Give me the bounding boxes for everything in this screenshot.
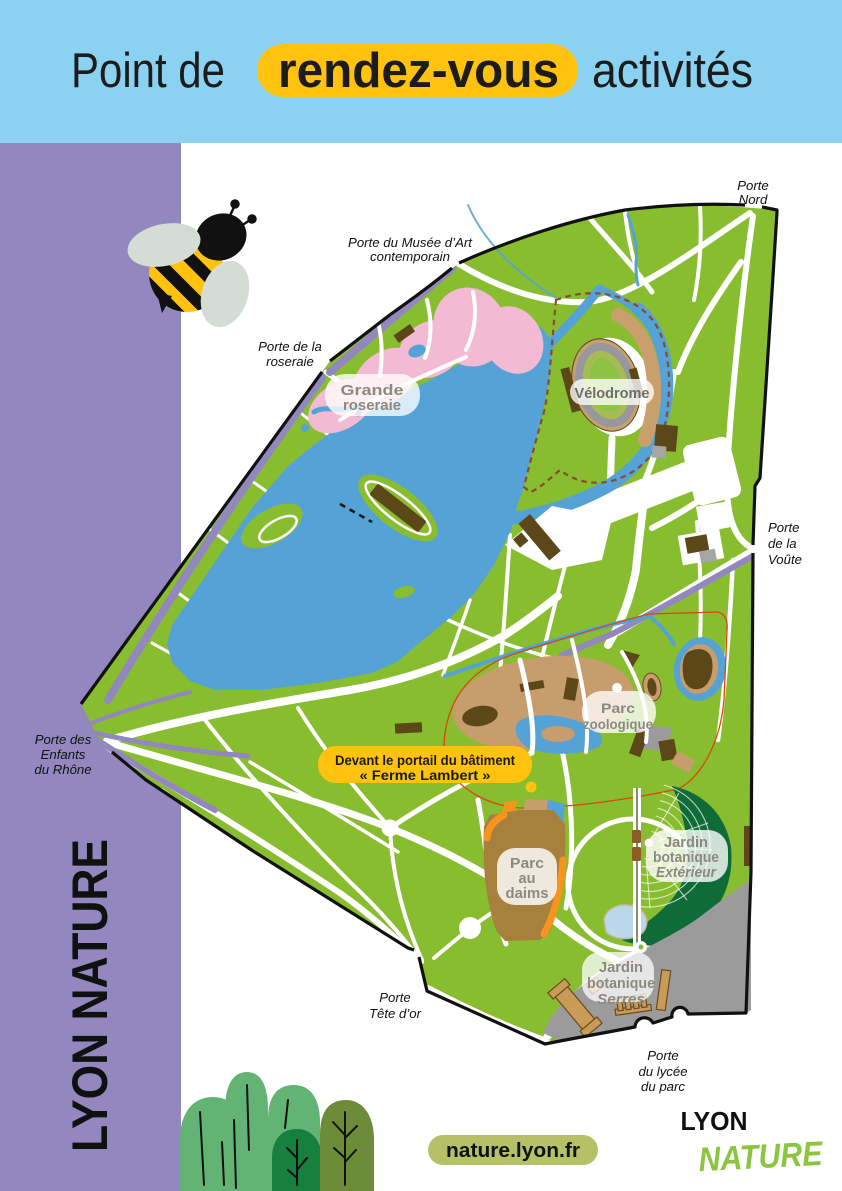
svg-text:Porte: Porte	[379, 990, 411, 1005]
svg-text:Porte: Porte	[647, 1048, 679, 1063]
svg-text:Porte de la: Porte de la	[258, 339, 322, 354]
svg-text:botanique: botanique	[653, 850, 719, 866]
svg-text:Parc: Parc	[510, 856, 544, 872]
svg-text:du lycée: du lycée	[638, 1064, 687, 1079]
svg-text:botanique: botanique	[587, 976, 655, 992]
svg-text:Vélodrome: Vélodrome	[575, 386, 650, 402]
svg-text:Devant le portail du bâtiment: Devant le portail du bâtiment	[335, 753, 515, 768]
svg-text:activités: activités	[592, 44, 753, 98]
svg-text:Jardin: Jardin	[599, 960, 643, 976]
svg-text:roseraie: roseraie	[343, 397, 401, 414]
svg-text:Point de: Point de	[71, 44, 225, 98]
svg-text:Nord: Nord	[739, 192, 768, 207]
svg-text:au: au	[519, 871, 536, 887]
svg-text:rendez-vous: rendez-vous	[278, 44, 559, 98]
svg-text:Serres: Serres	[597, 992, 645, 1008]
svg-text:Jardin: Jardin	[664, 835, 708, 851]
svg-text:Porte: Porte	[737, 178, 769, 193]
svg-text:Enfants: Enfants	[41, 747, 86, 762]
svg-text:Voûte: Voûte	[768, 552, 802, 567]
svg-text:contemporain: contemporain	[370, 249, 450, 264]
svg-text:NATURE: NATURE	[698, 1135, 825, 1179]
svg-text:Porte: Porte	[768, 520, 800, 535]
svg-text:Extérieur: Extérieur	[656, 865, 717, 881]
svg-text:LYON: LYON	[681, 1106, 748, 1136]
svg-text:zoologique: zoologique	[583, 716, 653, 732]
svg-text:du Rhône: du Rhône	[34, 762, 91, 777]
svg-text:de la: de la	[768, 536, 797, 551]
svg-text:Porte des: Porte des	[35, 732, 92, 747]
svg-text:daims: daims	[506, 886, 549, 902]
svg-text:Parc: Parc	[601, 700, 635, 716]
svg-text:Tête d’or: Tête d’or	[369, 1006, 422, 1021]
svg-text:Porte du Musée d’Art: Porte du Musée d’Art	[348, 235, 473, 250]
svg-text:roseraie: roseraie	[266, 354, 314, 369]
svg-text:du parc: du parc	[641, 1079, 685, 1094]
svg-text:LYON NATURE: LYON NATURE	[62, 839, 118, 1152]
svg-text:« Ferme Lambert »: « Ferme Lambert »	[360, 768, 491, 783]
svg-text:nature.lyon.fr: nature.lyon.fr	[446, 1140, 580, 1162]
